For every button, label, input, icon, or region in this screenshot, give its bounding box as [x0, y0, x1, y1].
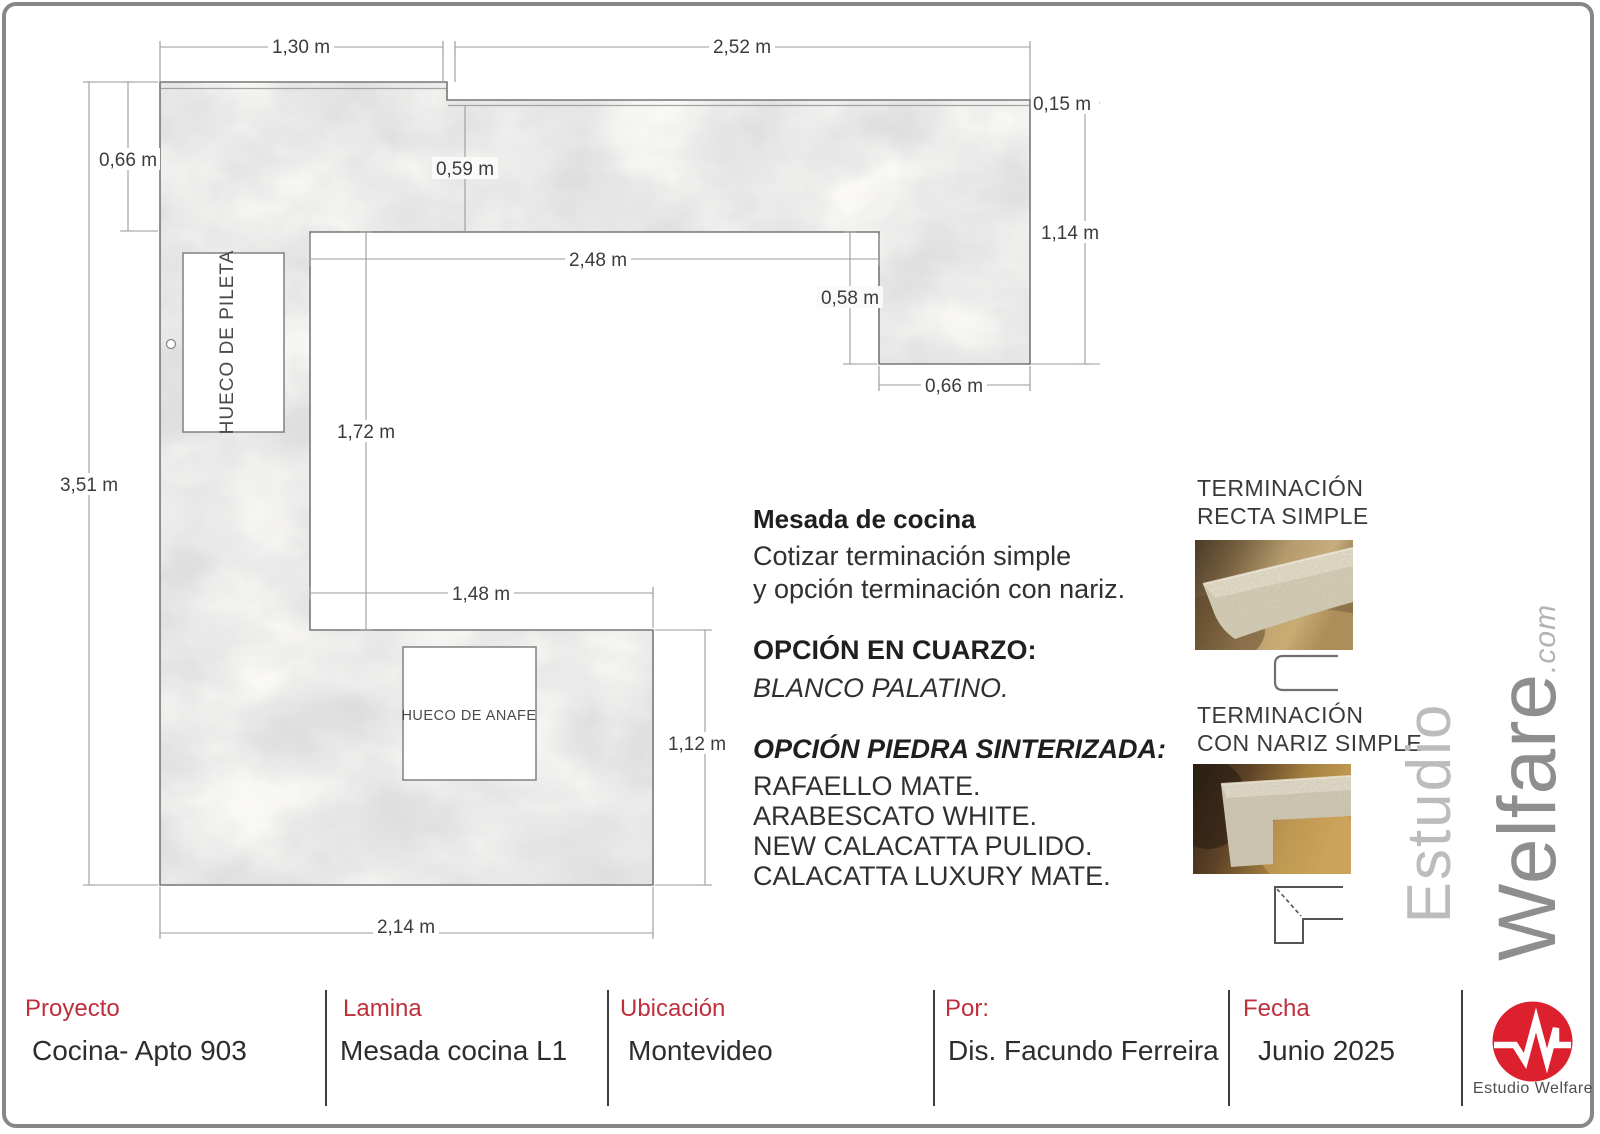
straight-edge-diagram: [1270, 652, 1340, 694]
sintered-option: ARABESCATO WHITE.: [753, 801, 1223, 831]
termination-1-photo: [1195, 540, 1353, 650]
dim-3-51: 3,51 m: [60, 475, 118, 496]
field-label-ubicacion: Ubicación: [620, 995, 725, 1023]
notes-title: Mesada de cocina: [753, 504, 1223, 535]
quartz-heading: OPCIÓN EN CUARZO:: [753, 635, 1223, 666]
field-value-proyecto: Cocina- Apto 903: [32, 1035, 247, 1067]
titleblock-divider: [933, 990, 935, 1106]
sintered-heading: OPCIÓN PIEDRA SINTERIZADA:: [753, 734, 1223, 765]
dim-0-15: 0,15 m: [1033, 94, 1091, 115]
termination-2-photo: [1193, 764, 1351, 874]
field-value-lamina: Mesada cocina L1: [340, 1035, 567, 1067]
nosed-edge-diagram: [1263, 883, 1347, 947]
field-value-fecha: Junio 2025: [1258, 1035, 1395, 1067]
termination-1-line2: RECTA SIMPLE: [1197, 502, 1427, 530]
dim-1-14: 1,14 m: [1041, 223, 1099, 244]
termination-1-label: TERMINACIÓN RECTA SIMPLE: [1197, 474, 1427, 530]
drawing-sheet: HUECO DE PILETA HUECO DE ANAFE: [0, 0, 1600, 1134]
titleblock-divider: [1228, 990, 1230, 1106]
sink-cutout-label: HUECO DE PILETA: [217, 250, 238, 435]
dim-2-48: 2,48 m: [569, 250, 627, 271]
dim-2-14: 2,14 m: [377, 917, 435, 938]
termination-1-line1: TERMINACIÓN: [1197, 474, 1427, 502]
sintered-option: CALACATTA LUXURY MATE.: [753, 861, 1223, 891]
field-label-proyecto: Proyecto: [25, 995, 120, 1023]
watermark-welfare: Welfare.com: [1476, 609, 1580, 961]
faucet-hole: [167, 340, 176, 349]
dim-0-59: 0,59 m: [436, 159, 494, 180]
field-value-por: Dis. Facundo Ferreira: [948, 1035, 1219, 1067]
sintered-option: RAFAELLO MATE.: [753, 771, 1223, 801]
estudio-welfare-logo: [1492, 1001, 1573, 1082]
field-label-por: Por:: [945, 995, 989, 1023]
watermark-tld: .com: [1529, 604, 1562, 673]
dim-0-58: 0,58 m: [821, 288, 879, 309]
dim-0-66-right: 0,66 m: [925, 376, 983, 397]
sintered-option: NEW CALACATTA PULIDO.: [753, 831, 1223, 861]
quartz-option: BLANCO PALATINO.: [753, 672, 1223, 705]
field-value-ubicacion: Montevideo: [628, 1035, 773, 1067]
watermark-estudio: Estudio: [1390, 685, 1470, 941]
dim-2-52: 2,52 m: [713, 37, 771, 58]
watermark-welfare-text: Welfare: [1482, 673, 1573, 961]
dim-0-66-left: 0,66 m: [99, 150, 157, 171]
notes-block: Mesada de cocina Cotizar terminación sim…: [753, 504, 1223, 891]
notes-line2: y opción terminación con nariz.: [753, 573, 1223, 606]
notes-line1: Cotizar terminación simple: [753, 540, 1223, 573]
dim-1-72: 1,72 m: [337, 422, 395, 443]
logo-caption: Estudio Welfare: [1458, 1080, 1600, 1098]
dim-1-12: 1,12 m: [668, 734, 726, 755]
dim-1-30: 1,30 m: [272, 37, 330, 58]
dim-1-48: 1,48 m: [452, 584, 510, 605]
cooktop-cutout-label: HUECO DE ANAFE: [401, 708, 536, 724]
titleblock-divider: [607, 990, 609, 1106]
field-label-fecha: Fecha: [1243, 995, 1310, 1023]
titleblock-divider: [325, 990, 327, 1106]
field-label-lamina: Lamina: [343, 995, 422, 1023]
